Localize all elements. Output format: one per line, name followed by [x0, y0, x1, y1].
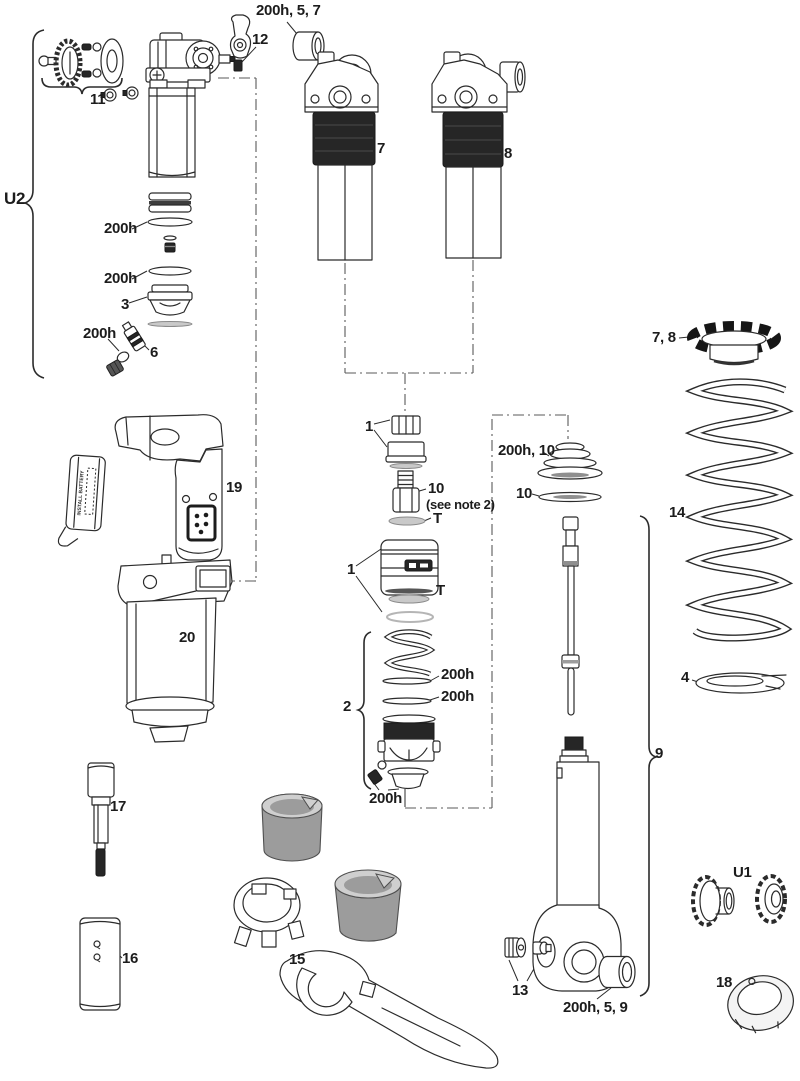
part-15-tools	[234, 794, 498, 1068]
part-17-shaft-clamp	[88, 763, 114, 876]
label-part-4: 4	[681, 670, 689, 685]
base-valve	[388, 768, 428, 789]
part-7-shock	[305, 52, 378, 260]
u1-mounting-hardware	[693, 876, 785, 925]
label-part-10-center: 10	[428, 481, 444, 496]
tool-ring-top	[262, 794, 322, 861]
label-u2: U2	[4, 190, 25, 207]
label-sealhead: 200h, 10	[498, 443, 555, 458]
left-damper-assembly	[146, 33, 235, 177]
label-part-1-a: 1	[365, 419, 373, 434]
mount-bolts	[101, 87, 138, 101]
label-part-20: 20	[179, 630, 195, 645]
glide-ring	[539, 493, 601, 502]
label-200h-ring-a: 200h	[441, 667, 474, 682]
label-bushing-top: 200h, 5, 7	[256, 3, 321, 18]
wrench-tool	[280, 951, 498, 1068]
brace-2	[358, 632, 371, 789]
label-part-7-8: 7, 8	[652, 330, 676, 345]
label-t-b: T	[436, 583, 445, 598]
part-19-controller: INSTALL BATTERY	[58, 415, 223, 560]
label-200h-a: 200h	[104, 221, 137, 236]
brace-u2	[25, 30, 44, 378]
label-200h-base: 200h	[369, 791, 402, 806]
label-part-19: 19	[226, 480, 242, 495]
label-200h-b: 200h	[104, 271, 137, 286]
seal-stack	[148, 193, 192, 327]
label-part-18: 18	[716, 975, 732, 990]
label-part-11: 11	[90, 92, 105, 107]
part-4-spring-retainer	[696, 673, 786, 693]
label-part-7: 7	[377, 141, 385, 156]
part-16-sleeve	[80, 918, 120, 1010]
label-200h-valve: 200h	[83, 326, 116, 341]
label-part-16: 16	[122, 951, 138, 966]
part-12-lever	[231, 15, 251, 71]
tool-ring-bottom	[335, 870, 401, 941]
diagram-artwork: INSTALL BATTERY	[0, 0, 800, 1081]
air-can	[381, 540, 438, 595]
label-part-10-right: 10	[516, 486, 532, 501]
label-part-9: 9	[655, 746, 663, 761]
label-part-2: 2	[343, 699, 351, 714]
part-11-knob-hardware	[39, 39, 138, 101]
label-part-15: 15	[289, 952, 305, 967]
damper-piston	[378, 715, 440, 761]
label-u1: U1	[733, 865, 752, 880]
brace-9	[640, 516, 656, 996]
label-part-8: 8	[504, 146, 512, 161]
label-part-6: 6	[150, 345, 158, 360]
damper-shaft	[562, 517, 579, 715]
battery: INSTALL BATTERY	[58, 454, 106, 548]
tool-ring-middle	[234, 878, 304, 947]
label-part-14: 14	[669, 505, 685, 520]
label-part-3: 3	[121, 297, 129, 312]
label-part-17: 17	[110, 799, 126, 814]
label-part-1-b: 1	[347, 562, 355, 577]
label-part-12: 12	[252, 32, 268, 47]
label-bushing-bottom: 200h, 5, 9	[563, 1000, 628, 1015]
part-20-reservoir	[118, 555, 232, 742]
label-t-a: T	[433, 511, 442, 526]
small-coil-spring	[388, 632, 431, 674]
diagram-canvas: INSTALL BATTERY	[0, 0, 800, 1081]
part-2-damper-internals	[367, 632, 440, 789]
part-3-piston-cap	[148, 285, 192, 315]
label-part-13: 13	[512, 983, 528, 998]
part-10-valve-core	[393, 471, 419, 512]
lower-eyelet-bushing	[599, 957, 635, 988]
part-14-coil-spring	[694, 382, 786, 638]
part-18-collar	[723, 970, 799, 1038]
label-200h-ring-b: 200h	[441, 689, 474, 704]
spring-collar	[692, 326, 776, 364]
